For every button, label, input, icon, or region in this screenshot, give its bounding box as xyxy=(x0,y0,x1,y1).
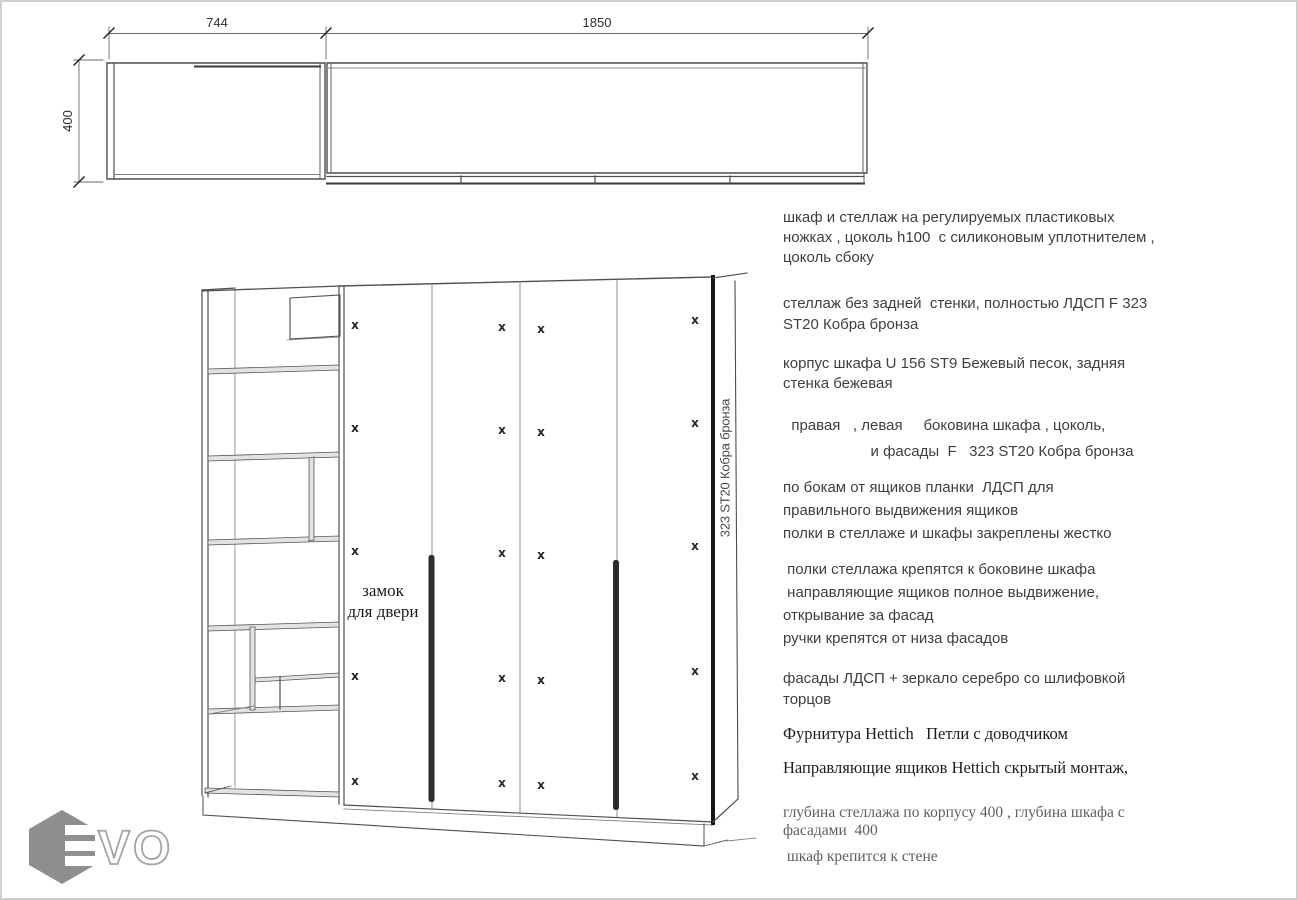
top-view-door-strip xyxy=(327,173,864,184)
note-wall-mount: шкаф крепится к стене xyxy=(783,848,1223,866)
hinge-mark: x xyxy=(351,669,359,683)
dim-label-1850: 1850 xyxy=(572,16,622,30)
hinge-mark: x xyxy=(537,425,545,439)
dimension-lines xyxy=(74,27,873,187)
hinge-mark: x xyxy=(537,778,545,792)
right-side-panel-edge xyxy=(735,281,738,799)
note-sides-facades: правая , левая боковина шкафа , цоколь, … xyxy=(783,413,1223,465)
note-legs-plinth: шкаф и стеллаж на регулируемых пластиков… xyxy=(783,208,1223,268)
hinge-mark: x xyxy=(537,322,545,336)
logo-e-bars xyxy=(65,825,96,866)
note-hardware-hettich: Фурнитура Hettich Петли с доводчиком xyxy=(783,723,1223,744)
hinge-mark: x xyxy=(498,671,506,685)
doors-bottom-edge xyxy=(344,805,713,822)
hinge-mark: x xyxy=(351,774,359,788)
hinge-mark: x xyxy=(691,539,699,553)
stellage-shelves xyxy=(205,365,339,797)
evo-logo: VO xyxy=(12,800,182,892)
logo-text: VO xyxy=(98,822,173,875)
hinge-mark: x xyxy=(691,416,699,430)
stellage-half-shelf xyxy=(255,673,339,682)
stellage-top-niche xyxy=(287,295,340,340)
hinge-mark: x xyxy=(537,673,545,687)
top-view-shelf-unit xyxy=(107,63,325,179)
note-depths: глубина стеллажа по корпусу 400 , глубин… xyxy=(783,804,1223,840)
hinge-mark: x xyxy=(691,769,699,783)
hinge-mark: x xyxy=(351,544,359,558)
stellage-divider-lower xyxy=(250,627,255,710)
hinge-mark: x xyxy=(498,320,506,334)
plinth-bottom-edge xyxy=(203,815,704,846)
hinge-mark: x xyxy=(498,546,506,560)
hinge-mark: x xyxy=(537,548,545,562)
note-shelves-drawers: полки стеллажа крепятся к боковине шкафа… xyxy=(783,558,1223,650)
wardrobe-top-edge xyxy=(340,277,713,286)
side-panel-material-label: 323 ST20 Кобра бронза xyxy=(719,399,732,537)
blueprint-page: VO 744 1850 400 замок для двери 323 ST20… xyxy=(0,0,1298,900)
hinge-mark: x xyxy=(351,318,359,332)
plinth xyxy=(203,796,756,846)
note-body-material: корпус шкафа U 156 ST9 Бежевый песок, за… xyxy=(783,354,1223,394)
door-lock-label: замок для двери xyxy=(333,580,433,622)
dim-label-744: 744 xyxy=(192,16,242,30)
dimension-ticks xyxy=(74,28,873,187)
top-view-wardrobe xyxy=(327,63,867,184)
door-handle-right xyxy=(613,560,619,810)
hinge-mark: x xyxy=(498,776,506,790)
note-facade-mirror: фасады ЛДСП + зеркало серебро со шлифовк… xyxy=(783,668,1223,710)
note-drawer-strips: по бокам от ящиков планки ЛДСП для прави… xyxy=(783,476,1223,545)
dim-label-400: 400 xyxy=(61,103,75,139)
hinge-mark: x xyxy=(691,664,699,678)
right-side-panel-bottom xyxy=(713,799,738,822)
hinge-mark: x xyxy=(351,421,359,435)
stellage-divider-upper xyxy=(309,457,314,541)
front-view-stellage xyxy=(202,286,344,805)
top-extension-line xyxy=(713,273,747,278)
hinge-mark: x xyxy=(498,423,506,437)
hinge-mark: x xyxy=(691,313,699,327)
note-drawer-slides: Направляющие ящиков Hettich скрытый монт… xyxy=(783,757,1223,778)
note-shelf-material: стеллаж без задней стенки, полностью ЛДС… xyxy=(783,293,1223,335)
